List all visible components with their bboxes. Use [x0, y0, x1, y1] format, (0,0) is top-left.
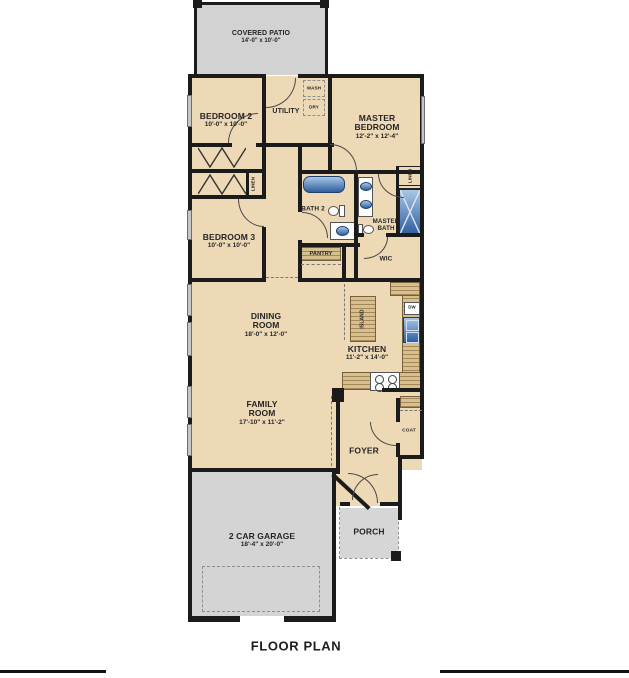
- wall: [298, 278, 424, 282]
- patio-post: [320, 0, 329, 8]
- wall: [262, 143, 266, 199]
- wall: [380, 502, 400, 506]
- page-title: FLOOR PLAN: [251, 639, 342, 654]
- sink-basin: [406, 320, 419, 331]
- linen-hall-name: LINEN: [250, 177, 255, 191]
- label-wash: WASH: [307, 85, 321, 90]
- window: [421, 96, 425, 144]
- dry-name: DRY: [309, 104, 319, 109]
- wall: [298, 74, 424, 78]
- bottom-rule-right: [440, 670, 629, 673]
- covered-patio-dims: 14'-0" x 10'-0": [232, 38, 290, 45]
- window: [187, 210, 192, 240]
- bedroom2-dims: 10'-0" x 10'-0": [200, 121, 252, 128]
- master-bedroom-name: MASTER BEDROOM: [348, 114, 406, 133]
- master-bath-name: MASTER BATH: [368, 219, 404, 233]
- porch-post: [391, 551, 401, 561]
- wall: [262, 227, 266, 282]
- garage-dims: 18'-4" x 20'-0": [229, 541, 295, 548]
- window: [187, 284, 192, 316]
- linen-master-name: LINEN: [407, 169, 412, 183]
- label-dw: DW: [408, 306, 416, 311]
- label-coat: COAT: [402, 428, 416, 433]
- sink: [336, 226, 349, 236]
- room-label-porch: PORCH: [353, 527, 384, 536]
- wall: [188, 169, 266, 173]
- coat-name: COAT: [402, 428, 416, 433]
- wall: [386, 233, 424, 237]
- window: [187, 95, 192, 127]
- wall: [246, 173, 249, 197]
- toilet-tank: [339, 205, 345, 217]
- wall: [194, 2, 328, 5]
- bedroom3-name: BEDROOM 3: [203, 233, 255, 242]
- room-label-bedroom3: BEDROOM 3 10'-0" x 10'-0": [203, 233, 255, 249]
- wall: [398, 458, 402, 508]
- room-label-master-bath: MASTER BATH: [368, 219, 404, 233]
- kitchen-dims: 11'-2" x 14'-0": [346, 354, 388, 361]
- wash-name: WASH: [307, 85, 321, 90]
- bedroom3-dims: 10'-0" x 10'-0": [203, 242, 255, 249]
- pantry-name: PANTRY: [310, 251, 333, 257]
- dw-name: DW: [408, 306, 416, 311]
- wall: [396, 443, 400, 457]
- wall: [284, 616, 336, 622]
- bedroom2-name: BEDROOM 2: [200, 112, 252, 121]
- wall: [336, 392, 340, 474]
- wall: [188, 74, 266, 78]
- master-bedroom-dims: 12'-2" x 12'-4": [348, 133, 406, 140]
- coat-dash: [400, 410, 422, 411]
- opening-dash: [331, 396, 332, 466]
- window: [187, 322, 192, 356]
- wall: [298, 243, 360, 247]
- opening-dash: [344, 284, 345, 340]
- label-island: ISLAND: [360, 309, 366, 328]
- wall: [354, 233, 358, 282]
- kitchen-sink: [403, 317, 420, 343]
- wall: [332, 472, 336, 622]
- wall: [188, 143, 232, 147]
- bifold-door: [198, 147, 246, 168]
- wall: [342, 247, 346, 279]
- foyer-name: FOYER: [349, 446, 379, 455]
- room-label-utility: UTILITY: [272, 108, 299, 116]
- wall: [298, 146, 302, 212]
- room-label-bath2: BATH 2: [301, 205, 325, 212]
- room-label-bedroom2: BEDROOM 2 10'-0" x 10'-0": [200, 112, 252, 128]
- island-name: ISLAND: [360, 309, 366, 328]
- wall: [398, 506, 402, 520]
- patio-post: [193, 0, 202, 8]
- coat-shelf: [400, 396, 422, 408]
- room-label-master-bedroom: MASTER BEDROOM 12'-2" x 12'-4": [348, 114, 406, 140]
- dining-dims: 18'-0" x 12'-0": [243, 331, 289, 338]
- room-label-foyer: FOYER: [349, 446, 379, 455]
- floor-plan-canvas: COVERED PATIO 14'-0" x 10'-0" BEDROOM 2 …: [0, 0, 629, 678]
- room-label-dining: DINING ROOM 18'-0" x 12'-0": [243, 312, 289, 338]
- label-linen-hall: LINEN: [250, 177, 255, 191]
- label-linen-master: LINEN: [407, 169, 412, 183]
- bifold-door: [198, 174, 246, 195]
- label-pantry: PANTRY: [310, 251, 333, 257]
- wall: [382, 388, 424, 392]
- room-label-family: FAMILY ROOM 17'-10" x 11'-2": [239, 400, 285, 426]
- window: [187, 424, 192, 456]
- wall: [188, 278, 266, 282]
- garage-name: 2 CAR GARAGE: [229, 532, 295, 541]
- room-label-kitchen: KITCHEN 11'-2" x 14'-0": [346, 345, 388, 361]
- bottom-rule-left: [0, 670, 106, 673]
- sink: [360, 200, 372, 209]
- porch-name: PORCH: [353, 527, 384, 536]
- window: [187, 386, 192, 418]
- kitchen-counter: [390, 282, 420, 296]
- toilet-bowl: [328, 206, 339, 216]
- room-label-wic: WIC: [380, 255, 393, 262]
- wall: [194, 2, 197, 76]
- pantry-dash: [301, 264, 341, 265]
- room-label-covered-patio: COVERED PATIO 14'-0" x 10'-0": [232, 30, 290, 44]
- opening-dash: [266, 277, 298, 278]
- bathtub: [303, 176, 345, 193]
- wall: [188, 472, 192, 622]
- label-dry: DRY: [309, 104, 319, 109]
- garage-door-apron: [202, 566, 320, 612]
- room-label-garage: 2 CAR GARAGE 18'-4" x 20'-0": [229, 532, 295, 548]
- bath2-name: BATH 2: [301, 205, 325, 212]
- utility-name: UTILITY: [272, 108, 299, 116]
- dining-name: DINING ROOM: [243, 312, 289, 331]
- family-dims: 17'-10" x 11'-2": [239, 419, 285, 426]
- sink-basin: [406, 332, 419, 343]
- wic-name: WIC: [380, 255, 393, 262]
- wall: [188, 468, 340, 472]
- kitchen-name: KITCHEN: [346, 345, 388, 354]
- wall: [325, 2, 328, 76]
- covered-patio-name: COVERED PATIO: [232, 30, 290, 38]
- family-name: FAMILY ROOM: [239, 400, 285, 419]
- wall: [188, 616, 240, 622]
- sink: [360, 182, 372, 191]
